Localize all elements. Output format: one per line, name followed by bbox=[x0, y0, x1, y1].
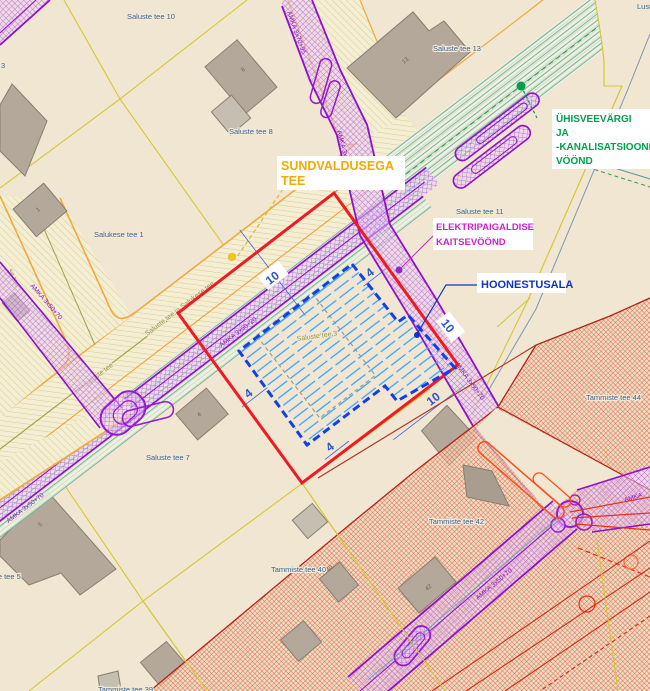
svg-text:Saluste tee 11: Saluste tee 11 bbox=[456, 207, 503, 216]
svg-text:VÖÖND: VÖÖND bbox=[556, 154, 593, 167]
svg-text:Saluste tee 13: Saluste tee 13 bbox=[433, 44, 481, 53]
svg-text:3: 3 bbox=[1, 61, 5, 70]
svg-text:ste tee 5: ste tee 5 bbox=[0, 572, 21, 581]
svg-text:TEE: TEE bbox=[281, 174, 305, 188]
svg-text:HOONESTUSALA: HOONESTUSALA bbox=[481, 279, 573, 291]
svg-text:Tammiste tee 39: Tammiste tee 39 bbox=[98, 685, 153, 691]
svg-text:KAITSEVÖÖND: KAITSEVÖÖND bbox=[436, 237, 506, 248]
svg-text:ELEKTRIPAIGALDISE: ELEKTRIPAIGALDISE bbox=[436, 222, 534, 233]
svg-text:Tammiste tee 44: Tammiste tee 44 bbox=[586, 393, 641, 402]
svg-text:ÜHISVEEVÄRGI: ÜHISVEEVÄRGI bbox=[556, 112, 632, 125]
svg-text:SUNDVALDUSEGA: SUNDVALDUSEGA bbox=[281, 159, 394, 173]
svg-text:Saluste tee 7: Saluste tee 7 bbox=[146, 453, 190, 462]
svg-text:Saluste tee 10: Saluste tee 10 bbox=[127, 12, 175, 21]
svg-text:Salukese tee 1: Salukese tee 1 bbox=[94, 230, 144, 239]
svg-text:Saluste tee 8: Saluste tee 8 bbox=[229, 127, 273, 136]
svg-text:Lusti: Lusti bbox=[637, 2, 650, 11]
svg-text:JA: JA bbox=[556, 128, 569, 139]
svg-text:Tammiste tee 40: Tammiste tee 40 bbox=[271, 565, 326, 574]
svg-text:Tammiste tee 42: Tammiste tee 42 bbox=[429, 517, 484, 526]
svg-text:-KANALISATSIOONI: -KANALISATSIOONI bbox=[556, 142, 650, 153]
